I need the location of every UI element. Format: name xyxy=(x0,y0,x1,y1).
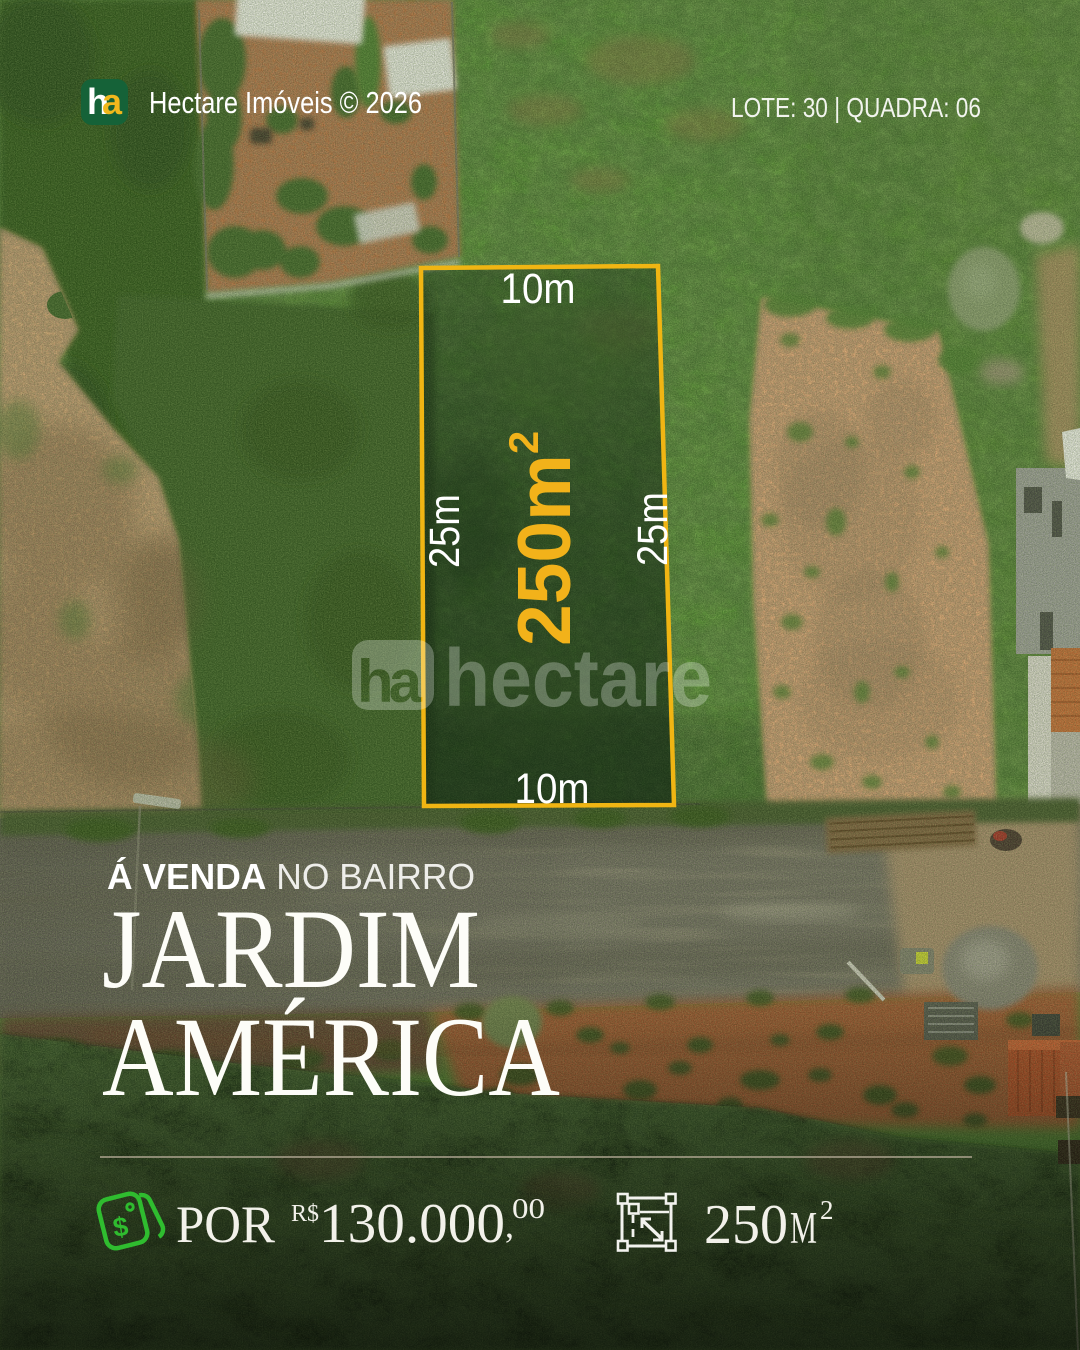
svg-text:130.000: 130.000 xyxy=(319,1193,505,1255)
svg-text:10m: 10m xyxy=(515,765,590,813)
svg-text:POR: POR xyxy=(176,1196,276,1254)
svg-text:10m: 10m xyxy=(501,265,576,313)
svg-text:2: 2 xyxy=(820,1195,834,1225)
svg-text:a: a xyxy=(102,81,123,122)
svg-text:R$: R$ xyxy=(291,1201,319,1227)
svg-text:JARDIM: JARDIM xyxy=(102,887,480,1012)
svg-text:250: 250 xyxy=(704,1194,788,1256)
svg-text:M: M xyxy=(790,1203,817,1253)
svg-text:250m2: 250m2 xyxy=(500,431,586,646)
svg-text:LOTE: 30 | QUADRA: 06: LOTE: 30 | QUADRA: 06 xyxy=(731,92,981,123)
svg-text:25m: 25m xyxy=(629,492,677,566)
svg-text:Hectare Imóveis © 2026: Hectare Imóveis © 2026 xyxy=(149,85,422,120)
svg-text:00: 00 xyxy=(512,1194,545,1225)
svg-text:AMÉRICA: AMÉRICA xyxy=(102,995,560,1120)
svg-text:25m: 25m xyxy=(421,494,469,568)
